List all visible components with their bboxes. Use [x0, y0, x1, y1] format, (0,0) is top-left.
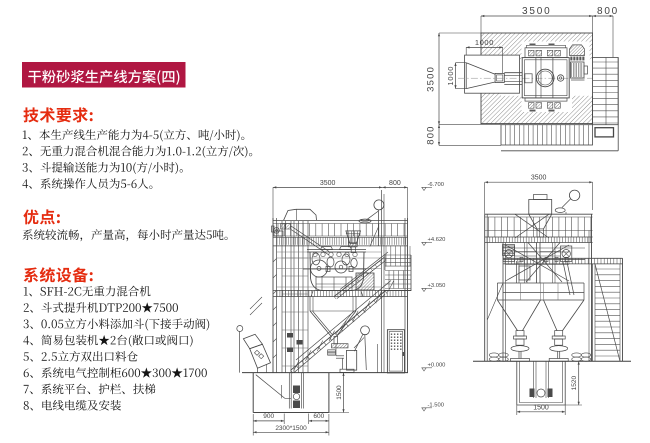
- svg-text:1500: 1500: [336, 385, 343, 400]
- svg-text:600: 600: [313, 413, 324, 420]
- svg-text:1500: 1500: [533, 404, 549, 411]
- svg-text:1000: 1000: [475, 38, 494, 47]
- svg-text:900: 900: [263, 413, 274, 420]
- svg-text:800: 800: [426, 125, 437, 144]
- svg-text:2300*1500: 2300*1500: [275, 425, 307, 432]
- svg-text:-6.700: -6.700: [428, 182, 444, 188]
- svg-text:3500: 3500: [531, 175, 547, 182]
- svg-text:+0.000: +0.000: [428, 362, 446, 368]
- svg-text:800: 800: [389, 180, 401, 187]
- svg-text:1520: 1520: [571, 376, 578, 391]
- svg-text:3500: 3500: [320, 180, 336, 187]
- svg-text:1000: 1000: [446, 66, 455, 86]
- svg-text:3500: 3500: [522, 6, 551, 17]
- svg-text:800: 800: [597, 6, 619, 17]
- svg-text:-1.500: -1.500: [428, 402, 444, 408]
- svg-text:3500: 3500: [426, 66, 437, 92]
- svg-text:+3.050: +3.050: [428, 283, 446, 289]
- svg-text:+4.620: +4.620: [428, 237, 446, 243]
